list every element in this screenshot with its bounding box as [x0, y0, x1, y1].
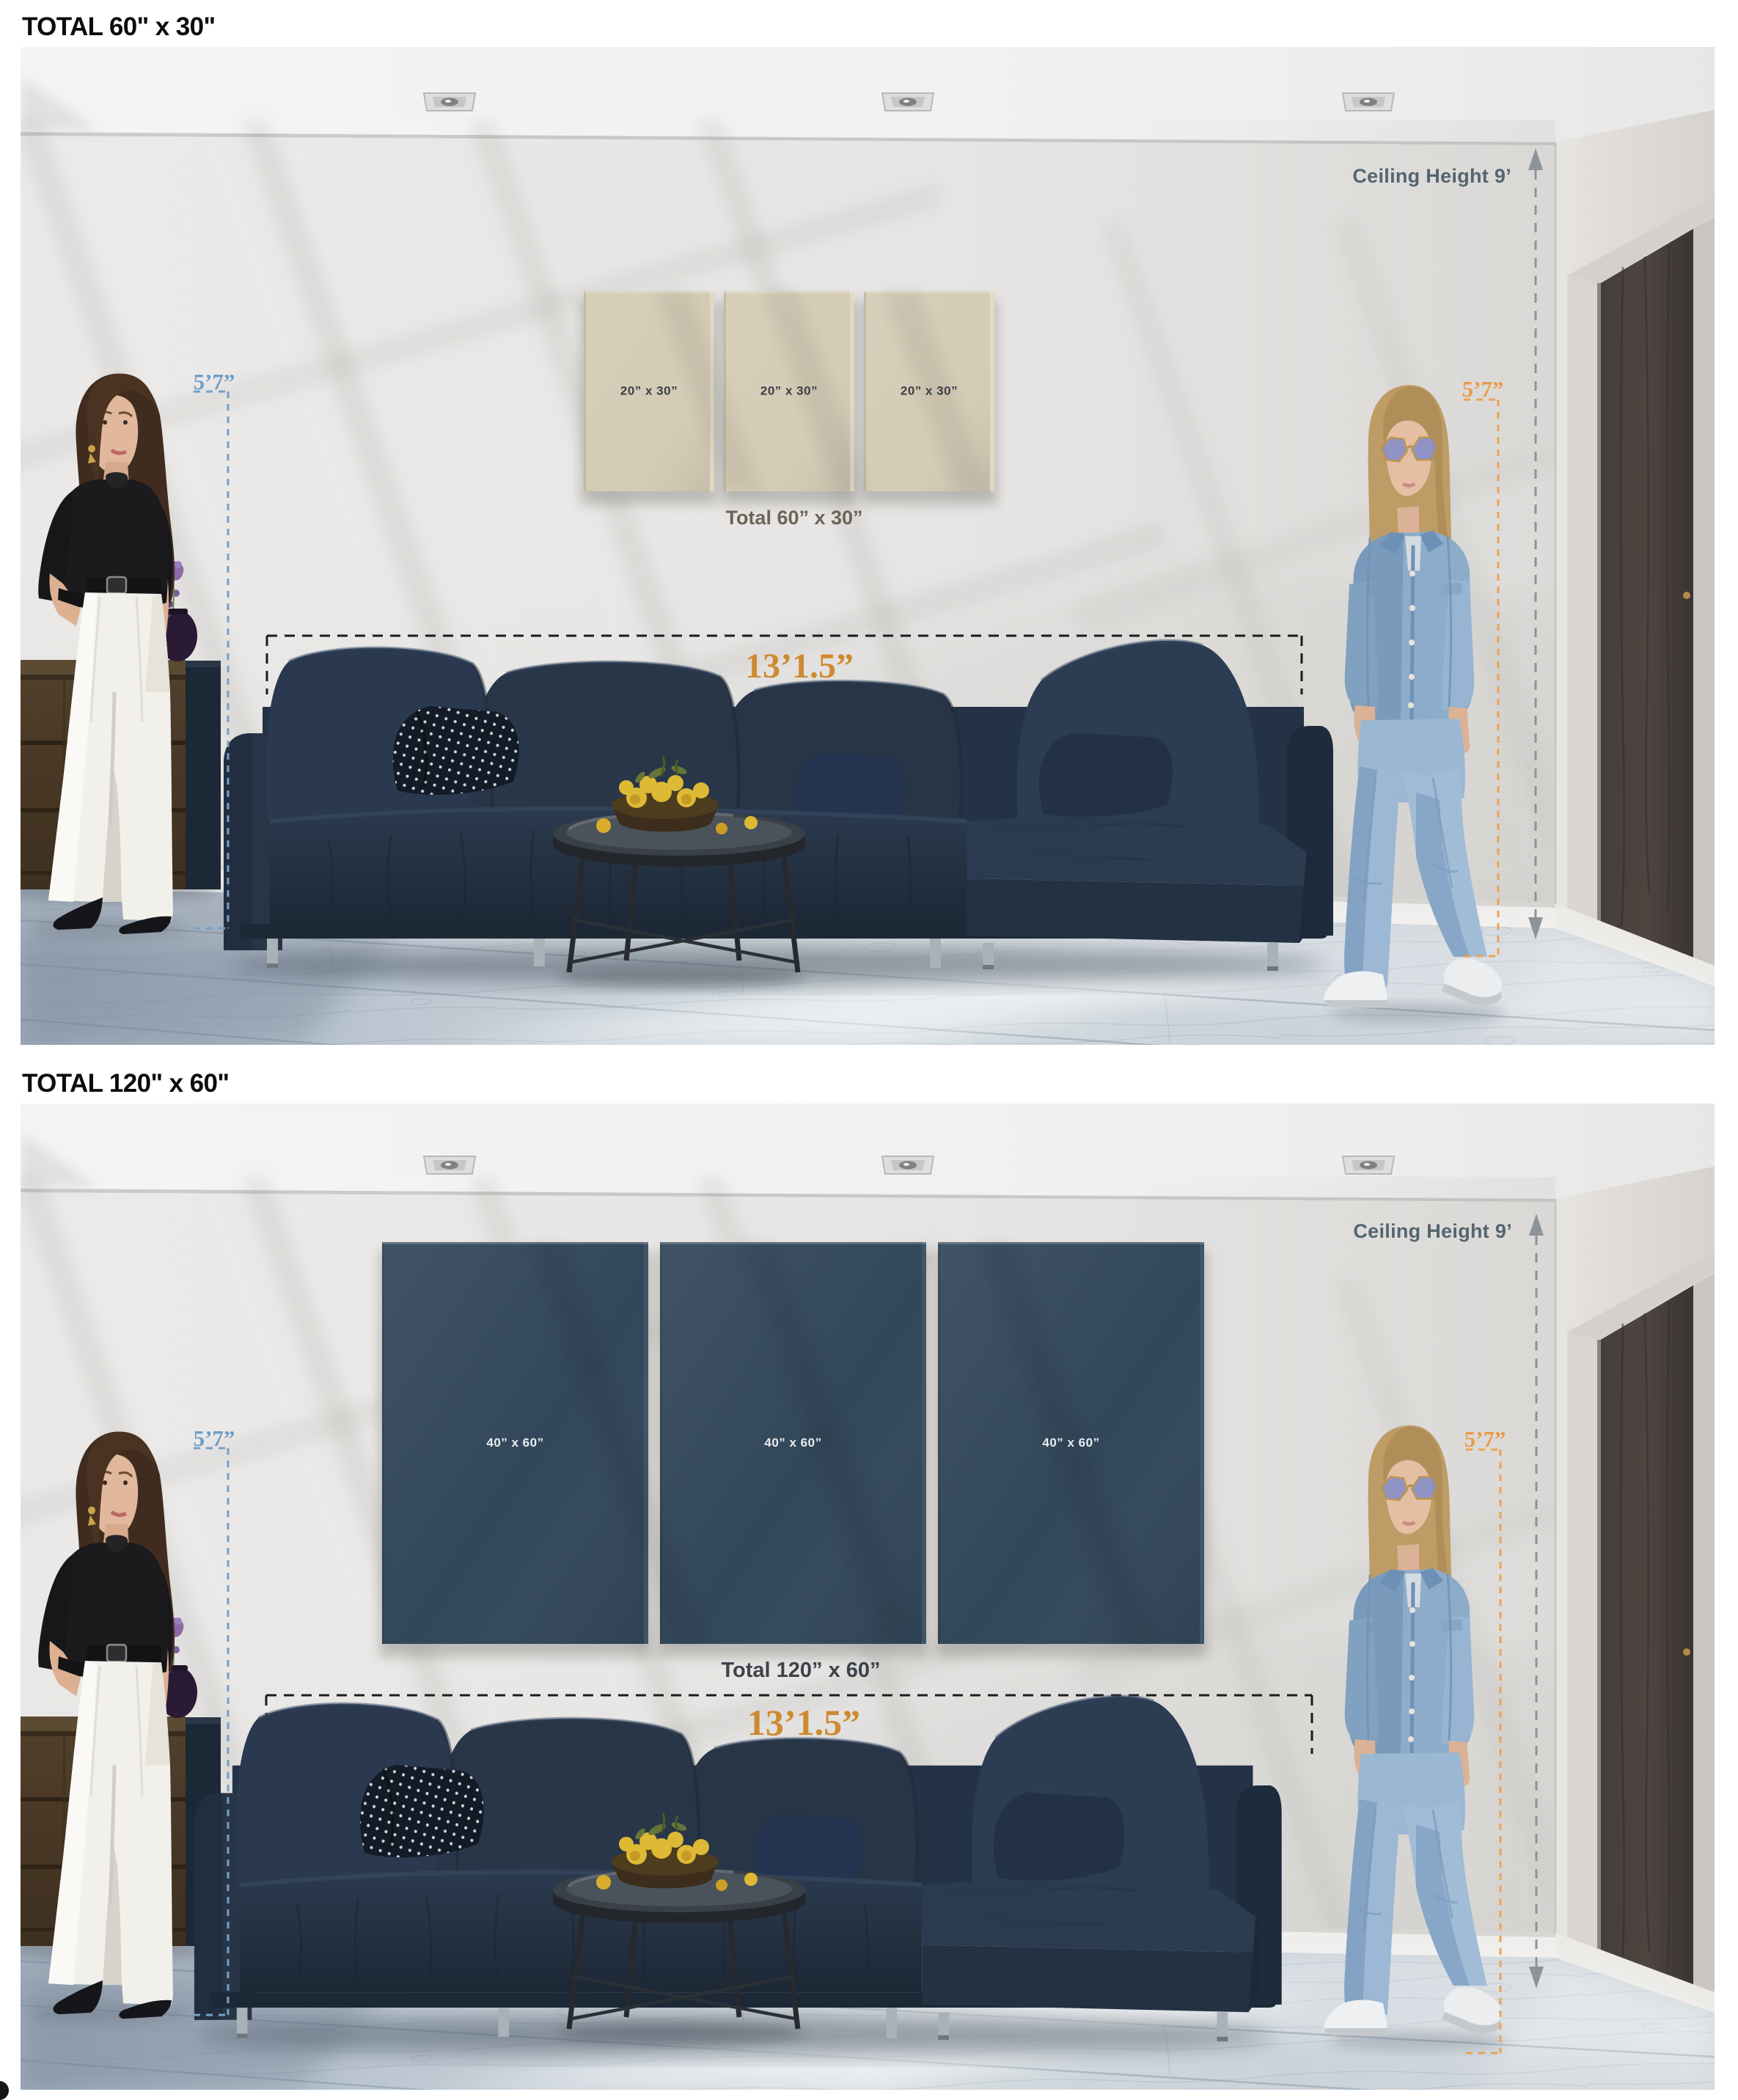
svg-text:20” x 30”: 20” x 30” — [760, 384, 818, 398]
svg-text:Ceiling Height 9’: Ceiling Height 9’ — [1353, 1220, 1512, 1242]
svg-text:Total 60” x 30”: Total 60” x 30” — [725, 507, 862, 529]
svg-text:5’7”: 5’7” — [1464, 1426, 1506, 1452]
svg-text:40” x 60”: 40” x 60” — [486, 1436, 543, 1450]
svg-text:5’7”: 5’7” — [194, 1425, 235, 1451]
svg-text:20” x 30”: 20” x 30” — [620, 384, 678, 398]
svg-text:5’7”: 5’7” — [1462, 376, 1504, 402]
svg-text:Ceiling Height 9’: Ceiling Height 9’ — [1352, 165, 1511, 187]
svg-text:5’7”: 5’7” — [194, 369, 235, 394]
svg-text:40” x 60”: 40” x 60” — [1042, 1436, 1099, 1450]
svg-text:20” x 30”: 20” x 30” — [901, 384, 958, 398]
svg-text:13’1.5”: 13’1.5” — [747, 1702, 860, 1743]
svg-text:40” x 60”: 40” x 60” — [764, 1436, 821, 1450]
svg-text:Total 120” x 60”: Total 120” x 60” — [721, 1659, 880, 1682]
